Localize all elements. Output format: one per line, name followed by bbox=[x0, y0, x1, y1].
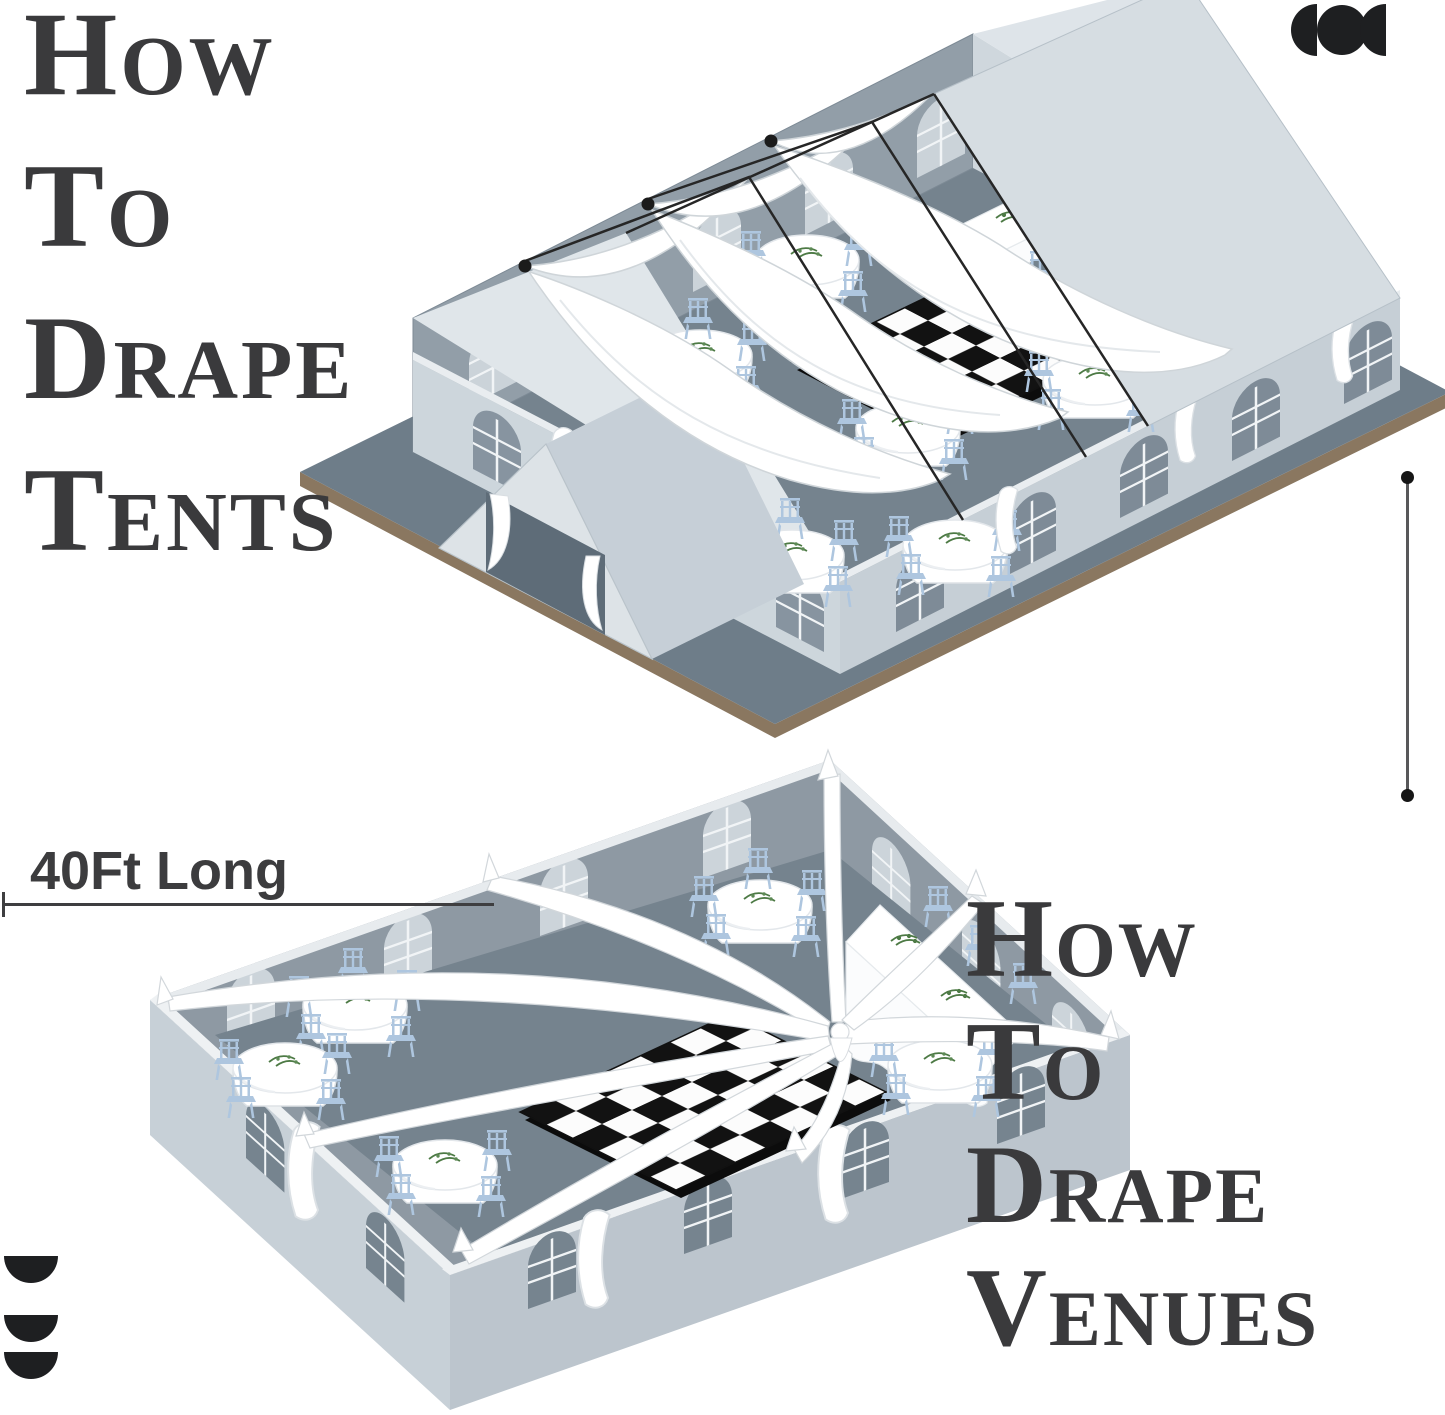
heading-line: To bbox=[24, 130, 354, 282]
heading-line: Drape bbox=[24, 282, 354, 434]
heading-line: Drape bbox=[966, 1124, 1319, 1247]
height-dimension-dot-top bbox=[1401, 471, 1414, 484]
heading-how-to-drape-venues: How To Drape Venues bbox=[966, 878, 1319, 1370]
height-dimension-line bbox=[1406, 477, 1409, 795]
heading-line: How bbox=[24, 0, 354, 130]
brand-mark-icon bbox=[1290, 2, 1420, 60]
height-dimension-dot-bottom bbox=[1401, 789, 1414, 802]
length-dimension-label: 40Ft Long bbox=[30, 840, 288, 902]
heading-line: To bbox=[966, 1001, 1319, 1124]
heading-line: How bbox=[966, 878, 1319, 1001]
tent-illustration bbox=[300, 0, 1445, 738]
heading-line: Tents bbox=[24, 434, 354, 586]
heading-how-to-drape-tents: How To Drape Tents bbox=[24, 0, 354, 586]
heading-line: Venues bbox=[966, 1247, 1319, 1370]
product-infographic: How To Drape Tents How To Drape Venues 4… bbox=[0, 0, 1445, 1415]
length-dimension-tick bbox=[2, 892, 5, 917]
brand-mark-stacked-icon bbox=[4, 1256, 64, 1390]
length-dimension-line bbox=[2, 903, 494, 906]
